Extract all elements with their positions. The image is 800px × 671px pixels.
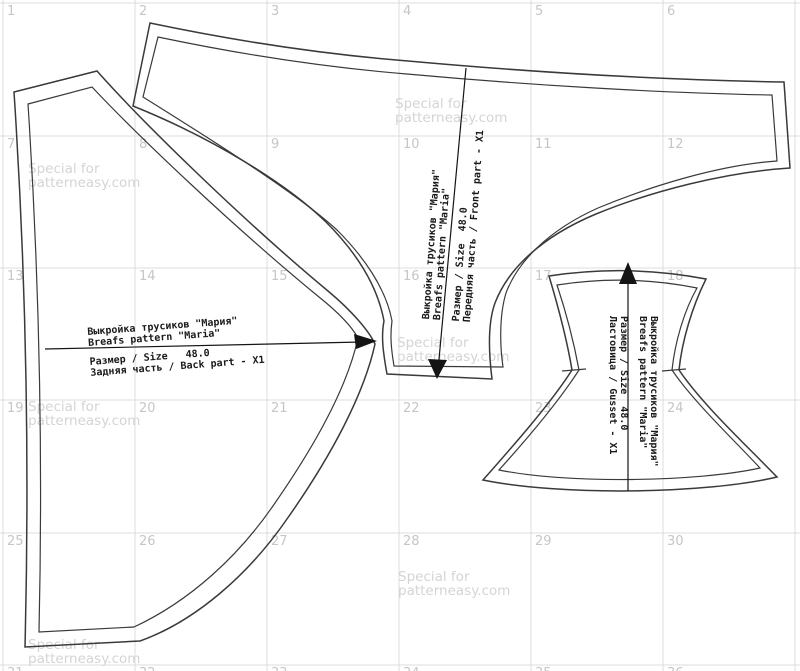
gusset-label: Выкройка трусиков "Мария"Breafs pattern …: [607, 316, 659, 467]
grid-cell-number: 10: [403, 137, 420, 152]
gusset-label-line-1: Выкройка трусиков "Мария": [648, 316, 659, 467]
grid-cell-number: 20: [139, 401, 156, 416]
grid-cell-number: 4: [403, 4, 411, 19]
grid-cell-number: 33: [271, 666, 288, 671]
grid-cell-number: 26: [139, 534, 156, 549]
grid-cell-number: 30: [667, 534, 684, 549]
grid-cell-number: 22: [403, 401, 420, 416]
grid-cell-number: 28: [403, 534, 420, 549]
watermark-brand-line2: patterneasy.com: [398, 583, 510, 599]
gusset-grainline-arrowhead-icon: [619, 262, 637, 284]
grid-cell-number: 25: [7, 534, 24, 549]
grid-cell-number: 7: [7, 137, 15, 152]
grid-cell-number: 18: [667, 269, 684, 284]
watermark-brand-line2: patterneasy.com: [28, 651, 140, 667]
grid-cell-number: 21: [271, 401, 288, 416]
gusset-notch-left: [562, 369, 586, 371]
watermark-brand-line2: patterneasy.com: [28, 413, 140, 429]
watermark-brand-line2: patterneasy.com: [395, 110, 507, 126]
gusset-label-line-3: Размер / Size 48.0: [618, 316, 629, 467]
grid-cell-number: 9: [271, 137, 279, 152]
gusset-notch-right: [662, 369, 686, 371]
grid-cell-number: 19: [7, 401, 24, 416]
grid-cell-number: 35: [535, 666, 552, 671]
grid-cell-number: 32: [139, 666, 156, 671]
grid-cell-number: 24: [667, 401, 684, 416]
watermark-brand-line2: patterneasy.com: [397, 349, 509, 365]
grid-cell-number: 5: [535, 4, 543, 19]
grid-cell-number: 2: [139, 4, 147, 19]
grid-cell-number: 15: [271, 269, 288, 284]
grid-cell-number: 3: [271, 4, 279, 19]
grid-cell-number: 31: [7, 666, 24, 671]
label-gap: [629, 316, 637, 467]
grid-cell-number: 6: [667, 4, 675, 19]
back-grainline-arrowhead-icon: [354, 334, 377, 349]
grid-cell-number: 14: [139, 269, 156, 284]
gusset-label-line-4: Ластовица / Gusset - X1: [607, 316, 618, 467]
grid-cell-number: 34: [403, 666, 420, 671]
grid-cell-number: 36: [667, 666, 684, 671]
watermark-brand-line2: patterneasy.com: [28, 175, 140, 191]
grid-cell-number: 13: [7, 269, 24, 284]
grid-cell-number: 1: [7, 4, 15, 19]
pattern-sheet: 1234567891011121314151617181920212223242…: [0, 0, 800, 671]
grid-cell-number: 12: [667, 137, 684, 152]
grid-cell-number: 16: [403, 269, 420, 284]
grid-cell-number: 29: [535, 534, 552, 549]
gusset-label-line-2: Breafs pattern "Maria": [637, 316, 648, 467]
grid-cell-number: 11: [535, 137, 552, 152]
